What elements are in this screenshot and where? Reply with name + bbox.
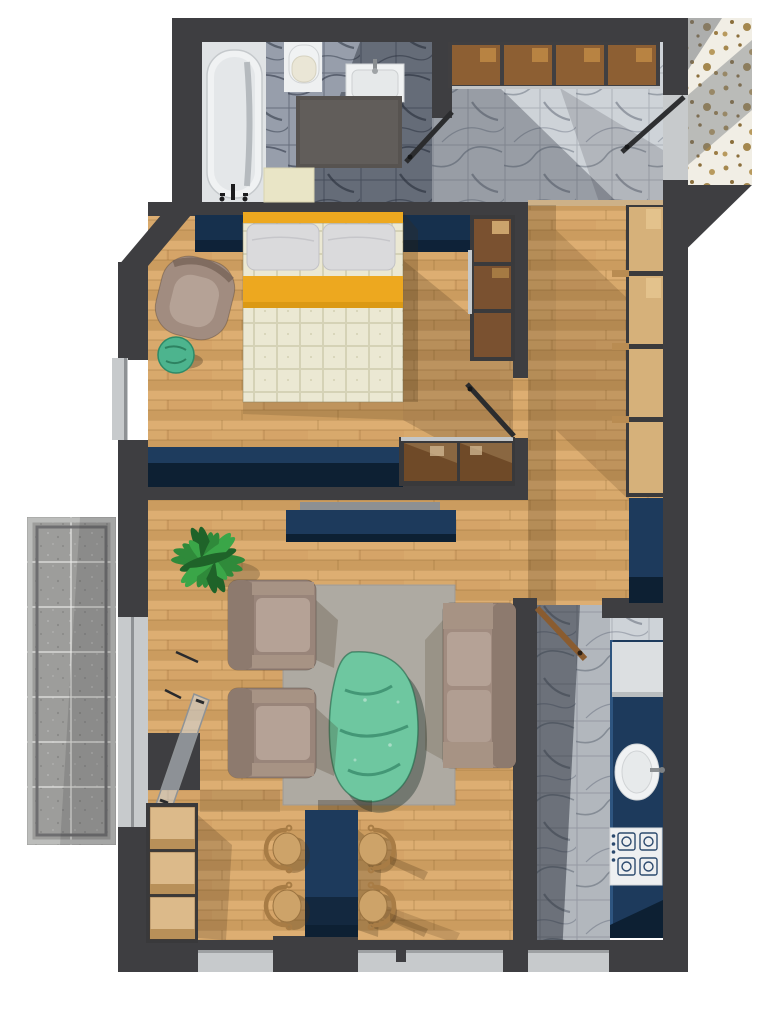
bathroom-door-handle-icon [408,155,413,160]
wall-bottom-pier [273,936,358,972]
wall-living-left-upper [118,512,148,617]
fridge [612,642,663,697]
toilet-partition-left [266,42,284,92]
window-2 [358,950,503,972]
bedroom-door-handle-icon [468,387,473,392]
wall-bedroom-divider-upper [513,202,528,378]
wall-right-upper [663,18,688,95]
hall-cabinet-navy [629,498,663,603]
window-mullion [396,950,406,962]
window-3 [528,950,609,972]
bedroom-wardrobe-3door [468,215,515,361]
wall-bedroom-left-lower [118,440,148,512]
wall-living-left-lower [118,827,148,940]
bath-mat [264,168,314,202]
bottom-windows [198,950,609,972]
wall-chamfer-right [663,185,752,272]
bed-head-rail [243,212,403,223]
toilet [289,45,319,83]
display-cabinet [399,437,515,486]
balcony [27,517,116,845]
toilet-partition-right [322,42,346,92]
floor-plan [0,0,757,1024]
wall-right [663,180,688,972]
entry-cabinets [448,42,660,89]
sofa [425,603,516,768]
tv-console [286,510,456,542]
wall-kitchen-divider [513,598,537,972]
bedroom-sideboard [148,447,403,487]
wall-top [172,18,688,42]
kitchen-door-handle-icon [578,651,583,656]
pillow-left [247,224,319,270]
hallway-shadow [528,205,556,605]
cooktop [610,828,662,885]
entry-door-handle-icon [625,145,630,150]
tv [300,502,440,510]
bed [243,212,418,402]
window-1 [198,950,273,972]
building-landing [688,18,752,185]
pillow-right [323,224,395,270]
wall-bathroom-left [172,18,202,202]
wall-bedroom-left-upper [118,262,148,360]
